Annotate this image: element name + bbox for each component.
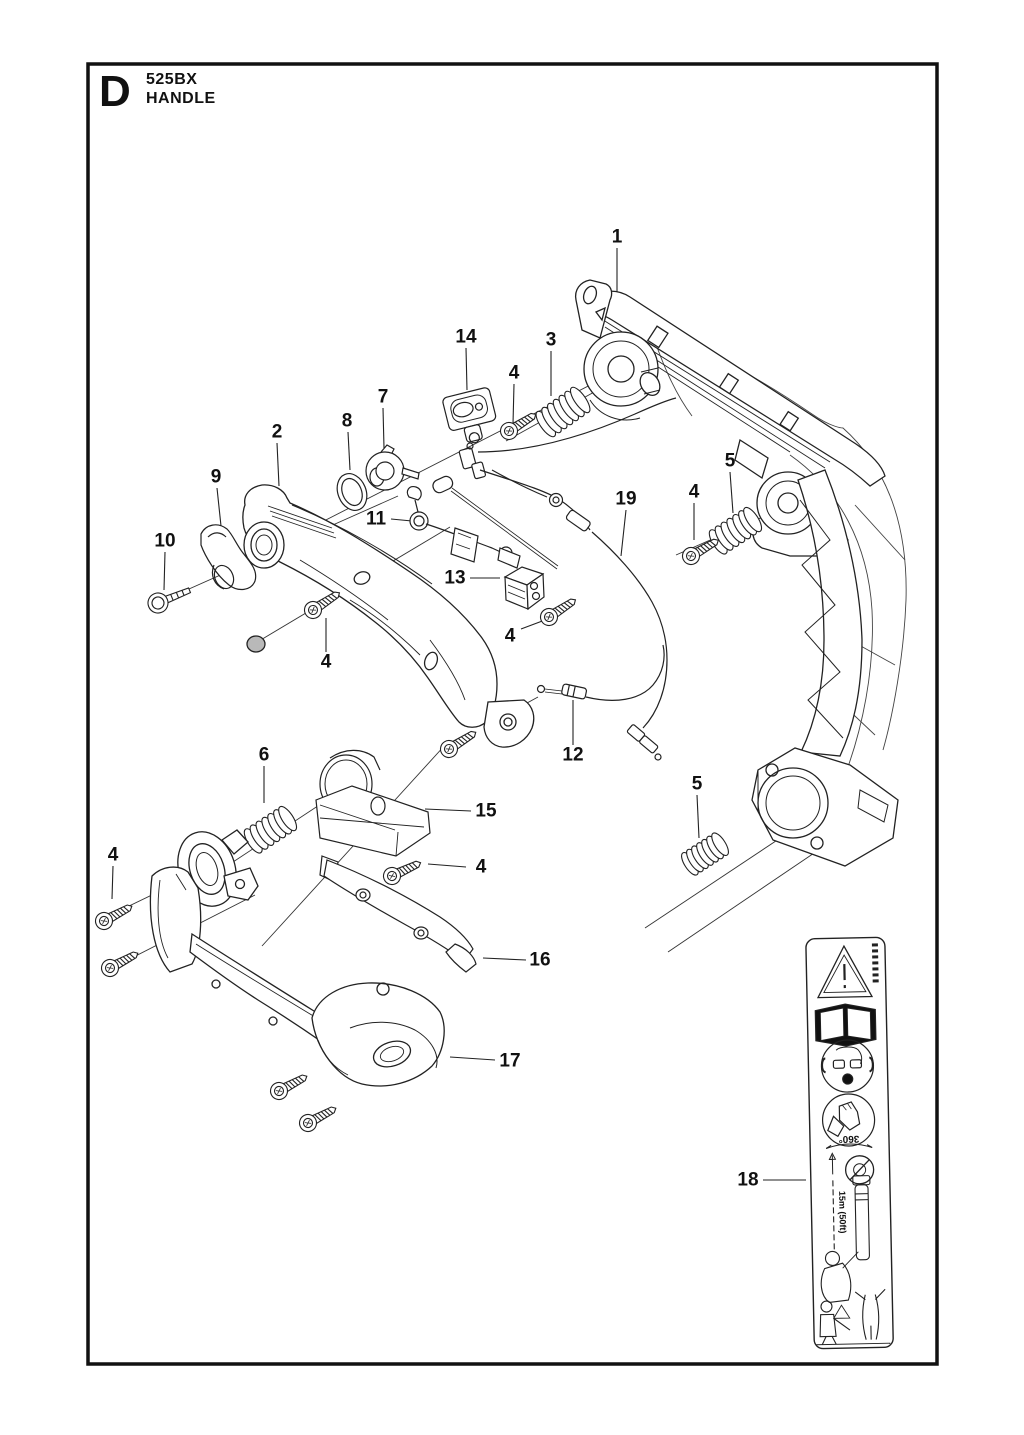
callout-12: 12 <box>562 746 583 765</box>
part-18-safety-decal: 360° 15m (50ft) <box>806 937 894 1349</box>
part-6-spring <box>241 804 300 856</box>
callout-15: 15 <box>475 802 496 821</box>
callout-11: 11 <box>366 510 386 529</box>
callout-2: 2 <box>272 423 283 442</box>
callout-13: 13 <box>444 569 465 588</box>
callout-4e: 4 <box>108 846 119 865</box>
part-13-clamp-block <box>505 567 544 609</box>
callout-5b: 5 <box>692 775 703 794</box>
part-10-bolt <box>145 581 193 616</box>
callout-5a: 5 <box>725 452 736 471</box>
callout-8: 8 <box>342 412 353 431</box>
part-plug <box>247 636 265 652</box>
section-letter: D <box>99 70 131 114</box>
callout-4b: 4 <box>689 483 700 502</box>
callout-4c: 4 <box>505 627 516 646</box>
part-5-spring-upper <box>706 505 765 557</box>
diagram-line-art: 360° 15m (50ft) <box>0 0 1024 1435</box>
callout-18: 18 <box>737 1171 758 1190</box>
callout-17: 17 <box>499 1052 520 1071</box>
callout-14: 14 <box>455 328 476 347</box>
part-15-tube-clamp <box>316 750 430 856</box>
part-17-end-cover <box>312 983 444 1086</box>
parts-diagram-page: 360° 15m (50ft) D 525BX HANDLE 1 14 3 4 … <box>0 0 1024 1435</box>
callout-4f: 4 <box>476 858 487 877</box>
callout-19: 19 <box>615 490 636 509</box>
part-2-handle-half <box>243 485 534 747</box>
part-12-throttle-cable <box>538 645 665 700</box>
callout-1: 1 <box>612 228 623 247</box>
callout-6: 6 <box>259 746 270 765</box>
callout-4d: 4 <box>321 653 332 672</box>
callout-7: 7 <box>378 388 389 407</box>
model-number: 525BX <box>146 71 197 89</box>
callout-3: 3 <box>546 331 557 350</box>
decal-distance-text: 15m (50ft) <box>837 1191 848 1234</box>
part-1-handle-assembly <box>576 280 898 866</box>
part-14-stop-switch <box>442 387 501 448</box>
callout-4a: 4 <box>509 364 520 383</box>
callout-9: 9 <box>211 468 222 487</box>
callout-16: 16 <box>529 951 550 970</box>
callout-10: 10 <box>154 532 175 551</box>
decal-360-text: 360° <box>839 1133 860 1144</box>
part-5-spring-lower <box>678 830 731 877</box>
section-title: HANDLE <box>146 90 216 108</box>
part-3-spring <box>533 385 594 440</box>
part-7-knob <box>366 445 419 490</box>
